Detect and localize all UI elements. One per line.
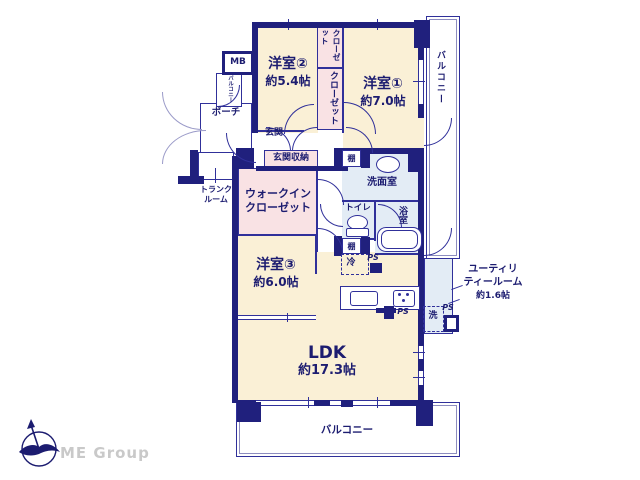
balcony-right-label: バルコニー — [430, 50, 445, 112]
burner-dot — [406, 293, 409, 296]
door-arc-corridor-upper — [162, 92, 202, 130]
room2-name: 洋室② — [248, 56, 328, 72]
wall — [341, 400, 353, 407]
wic-label-line2: クローゼット — [238, 202, 318, 215]
pipe-space-label: PS — [363, 253, 383, 262]
kitchen-sink-icon — [350, 291, 378, 306]
bathroom-label: 浴室 — [393, 206, 407, 232]
wall — [418, 359, 424, 371]
balcony-bottom-label: バルコニー — [305, 424, 389, 436]
shelf-bottom-label: 棚 — [342, 242, 361, 251]
entrance-label: 玄関 — [256, 128, 292, 138]
ldk-name: LDK — [287, 344, 367, 364]
toilet-tank-icon — [346, 228, 369, 237]
wall — [416, 400, 433, 426]
wall — [418, 22, 424, 60]
wall — [361, 237, 370, 254]
wall — [252, 22, 430, 28]
door-arc-wic — [318, 179, 344, 205]
window — [256, 400, 314, 406]
wall — [418, 334, 424, 346]
watermark-brand: ME Group — [60, 444, 150, 462]
burner-dot — [398, 293, 401, 296]
closet-top-label: クローゼット — [318, 29, 342, 63]
wall — [342, 200, 424, 202]
pipe-space-block — [370, 263, 382, 273]
wall — [178, 176, 204, 184]
utility-name-line2: ティールーム — [453, 277, 533, 289]
wall — [238, 234, 316, 236]
washer-label: 洗 — [425, 311, 441, 321]
wall — [237, 402, 261, 422]
window-tick — [308, 397, 309, 408]
partition-tick — [287, 313, 288, 322]
room3-name: 洋室③ — [236, 257, 316, 273]
window — [330, 400, 390, 406]
trunk-label-line2: ルーム — [196, 195, 236, 204]
closet-side-label: クローゼット — [322, 71, 338, 129]
room1-size: 約7.0帖 — [343, 95, 423, 109]
door-arc-corridor-lower — [162, 130, 206, 164]
meter-box-label: MB — [222, 57, 254, 67]
utility-name-line1: ユーティリ — [453, 264, 533, 276]
window — [418, 371, 424, 385]
utility-size: 約1.6帖 — [453, 291, 533, 301]
window-tick — [413, 352, 425, 353]
porch-label: ポーチ — [201, 108, 251, 119]
washroom-label: 洗面室 — [342, 177, 422, 189]
entrance-storage-label: 玄関収納 — [266, 153, 316, 163]
wall — [334, 148, 342, 169]
sliding-partition — [238, 315, 316, 320]
small-balcony-label: バルコニー — [221, 75, 233, 106]
leader-line — [215, 168, 216, 183]
window-tick — [413, 377, 425, 378]
trunk-label-line1: トランク — [196, 185, 236, 194]
wall — [408, 150, 424, 172]
ldk-size: 約17.3帖 — [287, 364, 367, 379]
window-tick — [377, 397, 378, 408]
fridge-label: 冷 — [343, 258, 359, 268]
floor-plan: 洋室② 約5.4帖 洋室① 約7.0帖 洋室③ 約6.0帖 LDK 約17.3帖… — [0, 0, 640, 480]
pipe-space-box — [444, 315, 459, 332]
room3-size: 約6.0帖 — [236, 276, 316, 290]
door-arc-room3 — [318, 228, 343, 253]
pipe-space-label: PS — [393, 307, 413, 316]
bathtub-inner-icon — [381, 230, 418, 249]
washbasin-icon — [376, 156, 400, 173]
toilet-label: トイレ — [340, 204, 376, 214]
shelf-top-label: 棚 — [342, 154, 361, 163]
pipe-space-label: PS — [438, 303, 458, 312]
room2-size: 約5.4帖 — [248, 75, 328, 89]
room1-name: 洋室① — [343, 76, 423, 92]
burner-dot — [402, 299, 405, 302]
wic-label-line1: ウォークイン — [238, 188, 318, 201]
